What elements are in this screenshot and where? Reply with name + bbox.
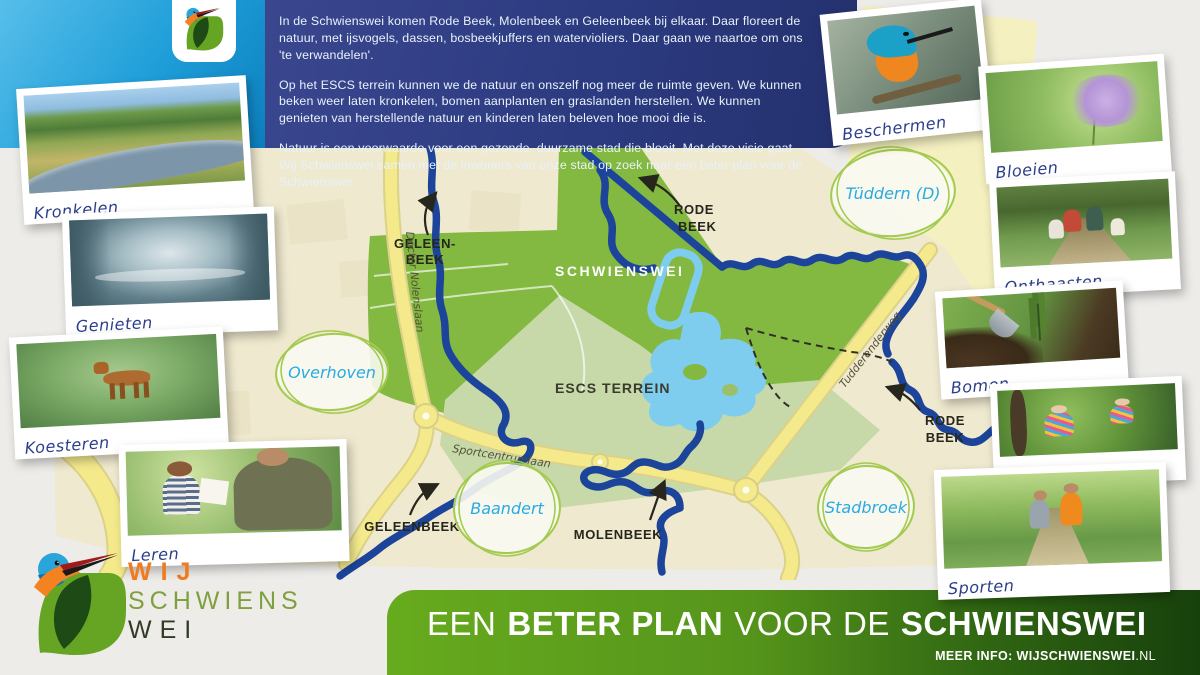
pond-island-2 bbox=[722, 384, 738, 396]
deer-leg bbox=[119, 383, 125, 399]
paper-sheet bbox=[198, 478, 229, 505]
intro-paragraph-1: In de Schwienswei komen Rode Beek, Molen… bbox=[279, 13, 811, 64]
child-figure bbox=[1044, 411, 1073, 436]
deer-leg bbox=[109, 383, 115, 399]
geleenbeek-top-label-1: GELEEN- bbox=[394, 236, 456, 251]
runner-figure bbox=[1059, 492, 1082, 526]
brand-wordmark: WIJ SCHWIENS WEI bbox=[128, 558, 303, 645]
photo-sporten-label: Sporten bbox=[947, 576, 1014, 598]
rodebeek-top-label-2: BEEK bbox=[678, 219, 717, 234]
rodebeek-top-label-1: RODE bbox=[674, 202, 714, 217]
tree-trunk bbox=[1010, 390, 1029, 457]
geleenbeek-bottom-label: GELEENBEEK bbox=[364, 519, 460, 534]
meer-info-line: MEER INFO: WIJSCHWIENSWEI.NL bbox=[935, 649, 1156, 663]
place-label-stadbroek: Stadbroek bbox=[825, 498, 908, 517]
photo-koesteren-image bbox=[16, 334, 220, 428]
banner-word-een: EEN bbox=[427, 605, 496, 643]
runner-figure bbox=[1029, 499, 1050, 529]
schwienswei-area-label: SCHWIENSWEI bbox=[555, 263, 684, 279]
deer-head bbox=[94, 361, 109, 374]
rodebeek-right-label-2: BEEK bbox=[926, 430, 965, 445]
walker-figure bbox=[1110, 218, 1125, 236]
place-label-overhoven: Overhoven bbox=[288, 363, 376, 382]
photo-onthaasten-image bbox=[996, 179, 1172, 268]
girl-head bbox=[167, 461, 193, 477]
meer-info-tld: .NL bbox=[1135, 649, 1156, 663]
photo-koesteren-label: Koesteren bbox=[24, 433, 110, 458]
brand-logo bbox=[30, 550, 130, 667]
photo-genieten: Genieten bbox=[62, 206, 278, 337]
park-path bbox=[1016, 506, 1096, 566]
photo-leren: Leren bbox=[118, 439, 349, 567]
photo-genieten-image bbox=[69, 214, 270, 307]
meer-info-label: MEER INFO: bbox=[935, 649, 1013, 663]
walker-figure bbox=[1063, 209, 1081, 232]
child-figure bbox=[1110, 405, 1134, 424]
walker-figure bbox=[1048, 219, 1064, 239]
photo-beschermen: Beschermen bbox=[820, 0, 995, 146]
photo-kronkelen: Kronkelen bbox=[16, 75, 254, 225]
photo-kronkelen-image bbox=[23, 83, 245, 194]
runner-head bbox=[1033, 491, 1046, 501]
banner-title: EEN BETER PLAN VOOR DE SCHWIENSWEI bbox=[427, 605, 1147, 643]
intro-paragraph-2: Op het ESCS terrein kunnen we de natuur … bbox=[279, 77, 811, 128]
deer-leg bbox=[134, 382, 140, 398]
man-figure bbox=[233, 457, 333, 532]
photo-bloeien-image bbox=[986, 61, 1163, 153]
header-logo-badge bbox=[172, 0, 236, 62]
photo-onthaasten: Onthaasten bbox=[989, 171, 1181, 299]
intro-panel: In de Schwienswei komen Rode Beek, Molen… bbox=[265, 0, 857, 148]
flower-bloom bbox=[1065, 72, 1148, 130]
photo-spelen-image bbox=[997, 383, 1178, 457]
child-head bbox=[1115, 398, 1130, 406]
photo-bomen-image bbox=[942, 288, 1120, 368]
photo-koesteren: Koesteren bbox=[9, 326, 229, 459]
photo-sporten-image bbox=[941, 469, 1162, 569]
brand-word-wij: WIJ bbox=[128, 558, 303, 587]
deer-figure bbox=[89, 359, 163, 401]
intro-paragraph-3: Natuur is een voorwaarde voor een gezond… bbox=[279, 140, 811, 191]
kingfisher-leaf-logo bbox=[30, 550, 130, 662]
photo-sporten: Sporten bbox=[934, 462, 1170, 600]
escs-area-label: ESCS TERREIN bbox=[555, 380, 670, 396]
brand-word-wei: WEI bbox=[128, 616, 303, 645]
photo-bloeien: Bloeien bbox=[978, 54, 1172, 185]
place-label-tuddern: Tüddern (D) bbox=[845, 184, 940, 203]
mist-shape bbox=[95, 267, 246, 283]
banner-word-beter-plan: BETER PLAN bbox=[507, 605, 723, 643]
poster: SCHWIENSWEI ESCS TERREIN GELEEN- BEEK RO… bbox=[0, 0, 1200, 675]
kingfisher-leaf-icon bbox=[183, 7, 225, 53]
meer-info-domain: WIJSCHWIENSWEI bbox=[1017, 649, 1136, 663]
walker-figure bbox=[1085, 206, 1103, 231]
river-shape bbox=[23, 125, 245, 193]
deer-leg bbox=[144, 382, 150, 398]
runner-head bbox=[1063, 483, 1079, 494]
pond-island bbox=[683, 364, 707, 380]
photo-beschermen-image bbox=[827, 6, 984, 115]
branch-shape bbox=[871, 74, 962, 105]
bottom-banner: EEN BETER PLAN VOOR DE SCHWIENSWEI MEER … bbox=[387, 590, 1200, 675]
photo-leren-image bbox=[126, 446, 342, 536]
banner-word-voor-de: VOOR DE bbox=[734, 605, 890, 643]
rodebeek-right-label-1: RODE bbox=[925, 413, 965, 428]
banner-word-schwienswei: SCHWIENSWEI bbox=[901, 605, 1147, 643]
molenbeek-label: MOLENBEEK bbox=[574, 527, 662, 542]
brand-word-schwiens: SCHWIENS bbox=[128, 587, 303, 616]
girl-figure bbox=[163, 475, 200, 515]
place-label-baandert: Baandert bbox=[470, 499, 544, 518]
